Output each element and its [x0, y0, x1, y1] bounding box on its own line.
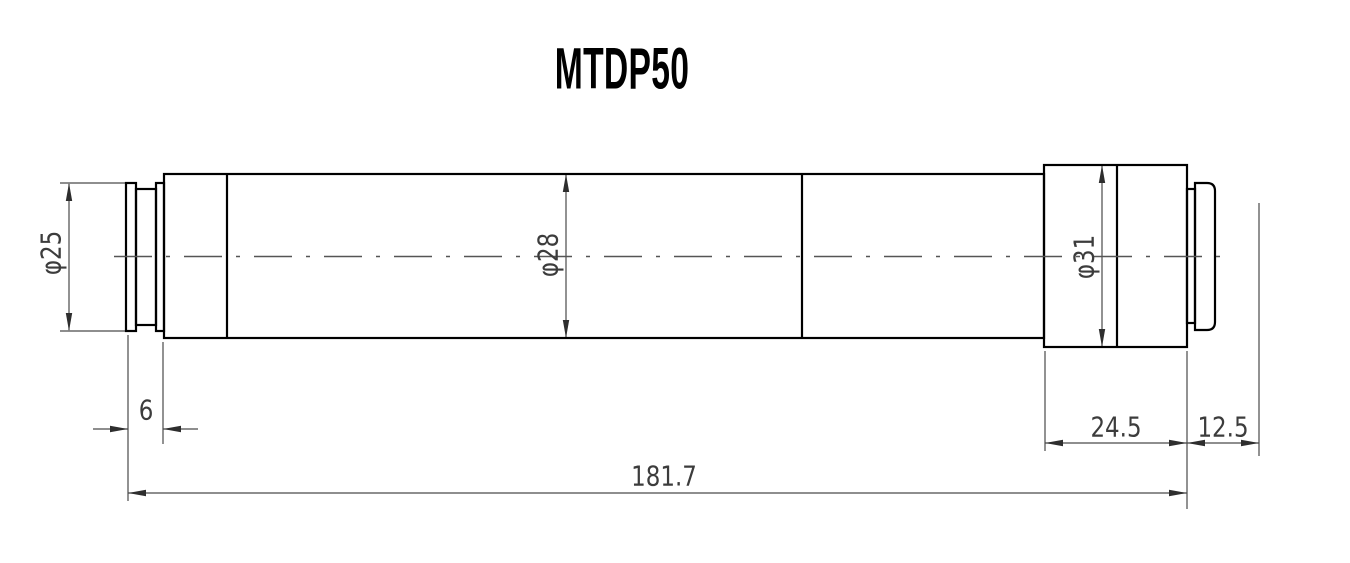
- arrow-rear-section-right: [1169, 440, 1187, 446]
- arrow-front-dia-up: [66, 183, 72, 201]
- arrow-front-step-left: [163, 426, 181, 432]
- arrow-mid-dia-up: [563, 174, 569, 192]
- dimension-lines: [69, 166, 1259, 493]
- arrow-overall-right: [1169, 490, 1187, 496]
- dim-label-rear-diameter: φ31: [1068, 235, 1101, 279]
- arrow-overall-left: [128, 490, 146, 496]
- dim-label-overall-length: 181.7: [631, 460, 697, 493]
- arrow-rear-section-left: [1045, 440, 1063, 446]
- front-inner-flange: [156, 183, 164, 331]
- dim-label-back-flange-distance: 12.5: [1197, 411, 1248, 444]
- dim-label-rear-section-length: 24.5: [1090, 411, 1141, 444]
- arrow-front-step-right: [110, 426, 128, 432]
- dim-label-mid-diameter: φ28: [532, 233, 565, 277]
- drawing-title: MTDP50: [555, 36, 689, 103]
- arrow-front-dia-down: [66, 313, 72, 331]
- arrow-rear-dia-up: [1099, 165, 1105, 183]
- dim-label-front-diameter: φ25: [35, 231, 68, 275]
- arrow-mid-dia-down: [563, 320, 569, 338]
- arrowheads: [66, 165, 1259, 496]
- arrow-rear-dia-down: [1099, 329, 1105, 347]
- dim-label-front-step-length: 6: [139, 394, 154, 427]
- technical-drawing-canvas: MTDP50 φ25 φ28 φ31 6 24.5 12.5 181.7: [0, 0, 1350, 563]
